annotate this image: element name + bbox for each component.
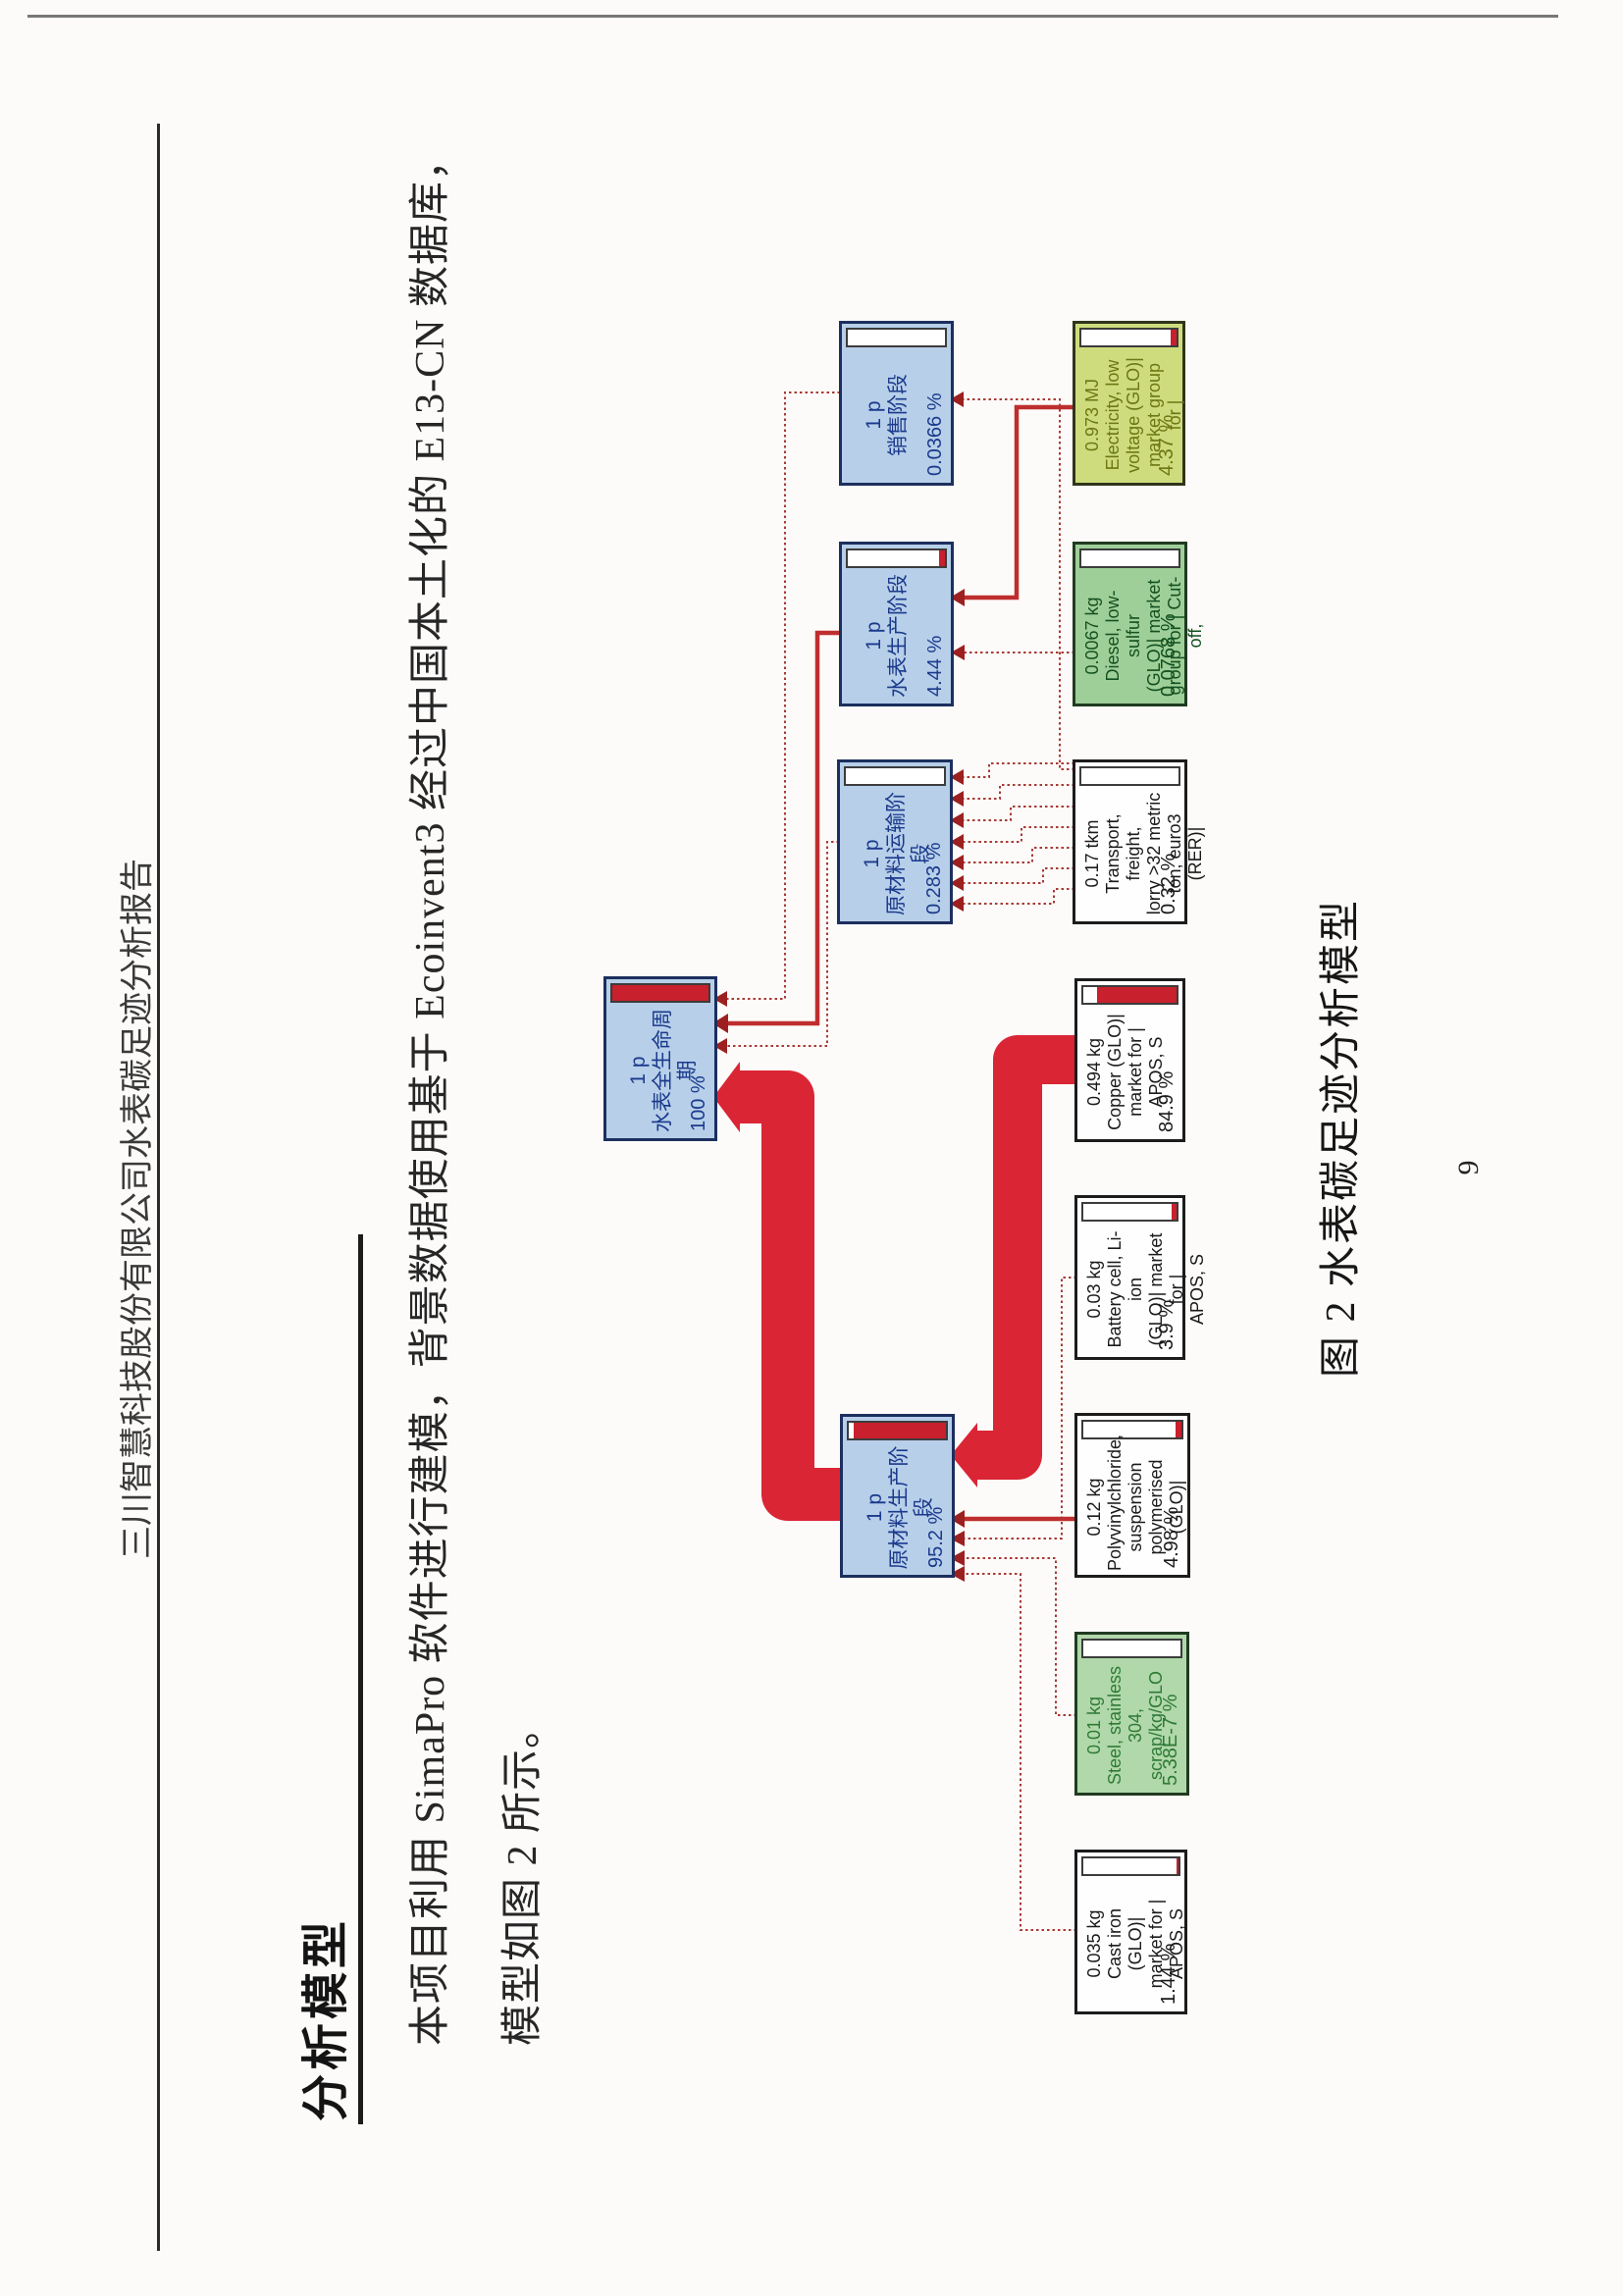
gauge-bar <box>846 548 947 568</box>
node-pct: 100 % <box>688 1075 710 1131</box>
node-electricity: 0.973 MJElectricity, low voltage (GLO)| … <box>1073 321 1185 486</box>
gauge-bar <box>1081 1856 1180 1876</box>
edge-transphase-to-lifecycle <box>722 842 839 1046</box>
node-meter-production: 1 p水表生产阶段 4.44 % <box>839 542 954 706</box>
node-name: Steel, stainless 304, scrap/kg/GLO <box>1105 1662 1167 1789</box>
gauge-bar <box>1079 766 1180 786</box>
edge-transport-6 <box>959 868 1074 883</box>
figure-caption: 图 2 水表碳足迹分析模型 <box>1307 746 1367 1531</box>
node-raw-material-production: 1 p原材料生产阶段 95.2 % <box>840 1414 955 1578</box>
node-pct: 0.32 % <box>1158 854 1180 914</box>
edge-sales-to-lifecycle <box>722 392 840 999</box>
node-name: Diesel, low-sulfur (GLO)| market group f… <box>1103 572 1206 700</box>
gauge-bar <box>1079 548 1180 568</box>
node-qty: 0.12 kg <box>1084 1443 1105 1571</box>
edge-electricity-to-meterprod <box>960 407 1074 598</box>
node-raw-material-transport: 1 p原材料运输阶段 0.283 % <box>837 759 953 924</box>
node-transport: 0.17 tkmTransport, freight, lorry >32 me… <box>1073 759 1187 924</box>
node-qty: 1 p <box>626 1007 651 1134</box>
node-diesel: 0.0067 kgDiesel, low-sulfur (GLO)| marke… <box>1073 542 1187 706</box>
node-pct: 95.2 % <box>925 1507 948 1568</box>
node-cast-iron: 0.035 kgCast iron (GLO)| market for | AP… <box>1074 1850 1187 2014</box>
node-pct: 4.37 % <box>1156 415 1178 476</box>
node-qty: 0.973 MJ <box>1082 351 1103 479</box>
gauge-bar <box>844 766 946 786</box>
node-qty: 0.035 kg <box>1084 1880 1105 2008</box>
page-number: 9 <box>1452 1146 1486 1189</box>
node-name: 水表生产阶段 <box>886 572 911 700</box>
node-qty: 0.494 kg <box>1084 1009 1105 1135</box>
node-pct: 4.98 % <box>1161 1507 1183 1568</box>
gauge-bar <box>1081 985 1178 1005</box>
node-qty: 0.0067 kg <box>1082 572 1103 700</box>
node-pct: 0.0366 % <box>924 392 947 476</box>
node-qty: 0.01 kg <box>1084 1662 1105 1789</box>
edge-rawmat-to-lifecycle <box>736 1097 852 1494</box>
edge-transport-1 <box>959 763 1074 777</box>
edge-transport-2 <box>959 785 1074 799</box>
node-pct: 0.0768 % <box>1158 613 1180 697</box>
node-qty: 0.03 kg <box>1084 1226 1105 1353</box>
edge-steel-to-rawmat <box>960 1558 1076 1715</box>
gauge-bar <box>1081 1639 1182 1658</box>
node-qty: 1 p <box>860 790 884 917</box>
edge-transport-5 <box>959 848 1074 862</box>
node-pct: 0.283 % <box>923 843 946 914</box>
gauge-bar <box>1079 328 1178 347</box>
edge-transport-7 <box>959 889 1074 904</box>
node-qty: 1 p <box>862 351 886 479</box>
edge-castiron-to-rawmat <box>960 1574 1076 1930</box>
node-pct: 84.9 % <box>1156 1071 1178 1132</box>
node-pct: 4.44 % <box>924 636 947 697</box>
node-steel: 0.01 kgSteel, stainless 304, scrap/kg/GL… <box>1074 1632 1189 1796</box>
edge-copper-to-rawmat <box>975 1060 1077 1455</box>
edge-copper-to-rawmat-arrow <box>951 1423 977 1487</box>
node-name: 销售阶段 <box>886 351 911 479</box>
node-pct: 1.44 % <box>1158 1944 1180 2005</box>
gauge-bar <box>846 328 947 347</box>
node-pct: 3.9 % <box>1156 1300 1178 1350</box>
node-qty: 1 p <box>863 1444 887 1571</box>
node-sales: 1 p销售阶段 0.0366 % <box>839 321 954 486</box>
rotated-landscape-content: 三川智慧科技股份有限公司水表碳足迹分析报告 分析模型 本项目利用 SimaPro… <box>0 0 1623 2296</box>
edge-transport-4 <box>959 827 1074 842</box>
edge-meterprod-to-lifecycle <box>722 633 842 1023</box>
gauge-bar <box>610 983 710 1003</box>
node-lifecycle: 1 p水表全生命周期 100 % <box>603 976 717 1141</box>
node-battery: 0.03 kgBattery cell, Li-ion (GLO)| marke… <box>1074 1195 1185 1360</box>
scanned-report-page: 三川智慧科技股份有限公司水表碳足迹分析报告 分析模型 本项目利用 SimaPro… <box>0 0 1623 2296</box>
gauge-bar <box>1081 1420 1183 1439</box>
edge-transport-3 <box>959 807 1074 820</box>
edge-rawmat-to-lifecycle-arrow <box>713 1062 740 1132</box>
node-name: Transport, freight, lorry >32 metric ton… <box>1103 790 1206 917</box>
gauge-bar <box>847 1421 948 1440</box>
node-qty: 1 p <box>862 572 886 700</box>
node-pct: 5.38E-7 % <box>1160 1695 1182 1786</box>
gauge-bar <box>1081 1202 1178 1222</box>
node-copper: 0.494 kgCopper (GLO)| market for | APOS,… <box>1074 978 1185 1142</box>
node-pvc: 0.12 kgPolyvinylchloride, suspension pol… <box>1074 1413 1190 1578</box>
node-qty: 0.17 tkm <box>1082 790 1103 917</box>
flow-connectors <box>0 0 1623 2296</box>
